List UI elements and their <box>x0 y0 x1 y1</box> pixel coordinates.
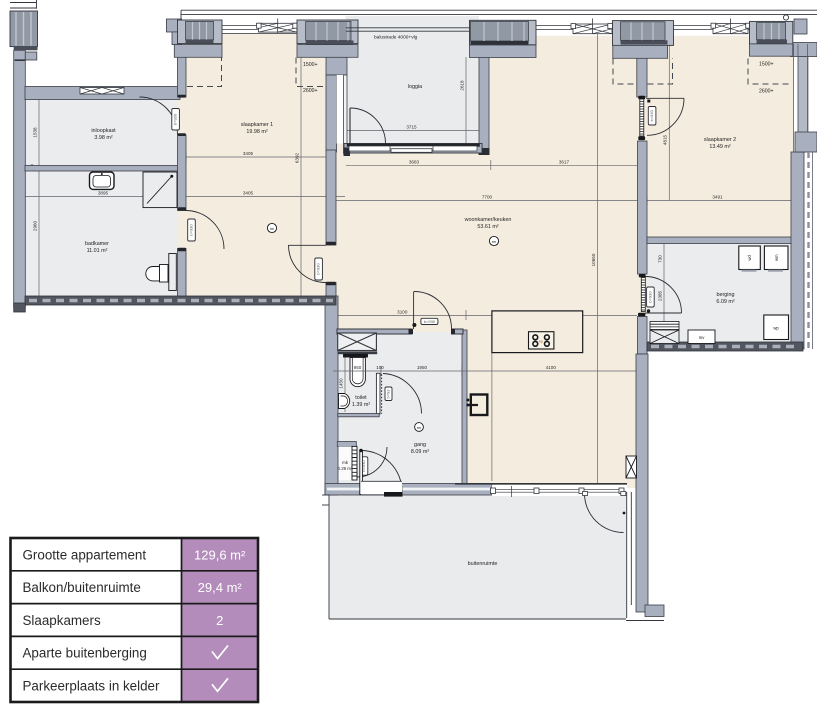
svg-text:Grootte appartement: Grootte appartement <box>23 547 147 562</box>
svg-text:730: 730 <box>658 255 663 263</box>
svg-text:8.09 m²: 8.09 m² <box>411 449 429 455</box>
svg-text:2600+: 2600+ <box>303 88 318 94</box>
svg-text:4100: 4100 <box>546 365 557 370</box>
svg-text:2: 2 <box>216 613 223 628</box>
svg-text:balustrade 4000+vlg: balustrade 4000+vlg <box>374 35 418 41</box>
svg-text:1450: 1450 <box>339 378 344 389</box>
svg-text:Parkeerplaats in kelder: Parkeerplaats in kelder <box>23 679 160 694</box>
svg-text:3405: 3405 <box>243 191 254 196</box>
svg-text:3895: 3895 <box>98 191 109 196</box>
svg-text:wd: wd <box>747 254 752 260</box>
svg-text:10650: 10650 <box>591 253 596 266</box>
svg-text:129,6 m²: 129,6 m² <box>194 547 246 562</box>
svg-text:b=930: b=930 <box>424 319 436 324</box>
svg-text:4815: 4815 <box>663 134 668 145</box>
svg-text:buitenruimte: buitenruimte <box>468 561 498 567</box>
svg-text:100: 100 <box>376 365 384 370</box>
svg-text:6.09 m²: 6.09 m² <box>716 299 734 305</box>
svg-text:b=930: b=930 <box>173 113 178 125</box>
svg-text:b=930: b=930 <box>361 460 366 472</box>
svg-text:badkamer: badkamer <box>85 241 109 247</box>
svg-text:toilet: toilet <box>355 395 367 401</box>
svg-text:wm: wm <box>774 254 779 261</box>
svg-text:b=930: b=930 <box>647 291 652 303</box>
svg-text:1538: 1538 <box>33 127 38 138</box>
svg-text:b=93: b=93 <box>385 389 390 399</box>
svg-text:53.61 m²: 53.61 m² <box>477 224 498 230</box>
svg-text:gang: gang <box>414 442 426 448</box>
svg-text:3617: 3617 <box>559 159 570 164</box>
svg-text:2600+: 2600+ <box>759 89 774 95</box>
svg-text:Slaapkamers: Slaapkamers <box>23 613 101 628</box>
svg-text:berging: berging <box>717 292 735 298</box>
svg-text:11.01 m²: 11.01 m² <box>87 248 108 254</box>
svg-text:2385: 2385 <box>658 290 663 301</box>
svg-text:rm: rm <box>492 240 496 244</box>
svg-text:13.49 m²: 13.49 m² <box>709 144 730 150</box>
svg-text:woonkamer/keuken: woonkamer/keuken <box>464 217 512 223</box>
svg-text:b=930: b=930 <box>649 109 654 121</box>
svg-text:1.39 m²: 1.39 m² <box>352 402 370 408</box>
svg-text:rm: rm <box>417 426 421 430</box>
svg-text:19.98 m²: 19.98 m² <box>246 129 267 135</box>
svg-text:3491: 3491 <box>712 195 723 200</box>
svg-text:kp: kp <box>539 339 543 343</box>
svg-text:3405: 3405 <box>243 151 254 156</box>
svg-text:rm: rm <box>270 227 274 231</box>
svg-text:2960: 2960 <box>33 220 38 231</box>
svg-text:3.98 m²: 3.98 m² <box>94 135 112 141</box>
svg-text:mk: mk <box>342 460 349 465</box>
svg-text:6392: 6392 <box>295 152 300 163</box>
svg-text:Aparte buitenberging: Aparte buitenberging <box>23 646 147 661</box>
svg-text:1500+: 1500+ <box>759 62 774 68</box>
svg-text:7700: 7700 <box>482 195 493 200</box>
svg-text:2618: 2618 <box>460 80 465 91</box>
svg-text:1950: 1950 <box>417 365 428 370</box>
svg-text:loggia: loggia <box>408 84 422 90</box>
svg-text:Balkon/buitenruimte: Balkon/buitenruimte <box>23 580 141 595</box>
svg-text:inloopkast: inloopkast <box>91 128 116 134</box>
svg-text:b=930: b=930 <box>316 263 321 275</box>
svg-text:3683: 3683 <box>409 159 420 164</box>
svg-text:b=930: b=930 <box>188 224 193 236</box>
svg-text:0.29 m²: 0.29 m² <box>338 466 353 471</box>
svg-text:3715: 3715 <box>406 125 417 130</box>
svg-text:slaapkamer 2: slaapkamer 2 <box>704 137 736 143</box>
svg-text:mv: mv <box>699 335 705 340</box>
svg-text:slaapkamer 1: slaapkamer 1 <box>241 122 273 128</box>
svg-text:950: 950 <box>354 365 362 370</box>
svg-text:1500+: 1500+ <box>303 62 318 68</box>
svg-text:wp: wp <box>773 326 779 331</box>
svg-text:3100: 3100 <box>397 309 408 314</box>
svg-text:29,4 m²: 29,4 m² <box>198 580 243 595</box>
